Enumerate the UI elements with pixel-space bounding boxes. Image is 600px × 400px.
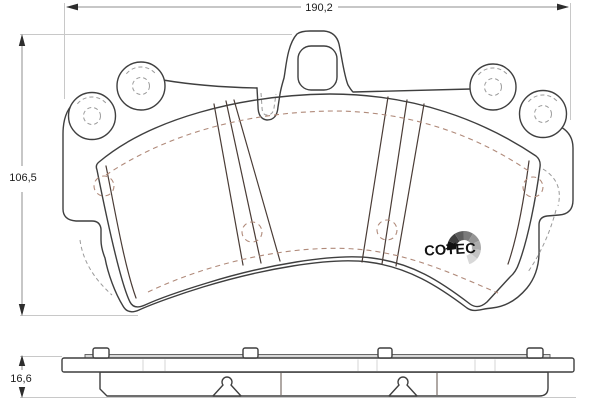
slot-line — [214, 104, 243, 265]
keyhole-slot — [389, 377, 417, 396]
arrow-left-icon — [66, 4, 78, 11]
chamfer-line-right — [508, 161, 529, 264]
width-dimension: 190,2 — [66, 2, 569, 14]
slot-line — [226, 101, 261, 263]
ear-circle-right-upper — [470, 64, 516, 110]
friction-pad-front — [96, 94, 540, 307]
logo-text: COTEC — [424, 241, 477, 260]
notch-hidden-edge — [261, 93, 276, 115]
clip-tab — [93, 348, 109, 358]
clip-tab — [243, 348, 258, 358]
ear-circle-right-lower — [520, 91, 567, 138]
hidden-hole-circle — [523, 177, 543, 197]
width-dimension-label: 190,2 — [305, 2, 333, 14]
hidden-edge-right-lower — [528, 210, 556, 272]
side-view — [62, 348, 574, 396]
drawing-canvas: 190,2 106,5 16,6 — [0, 0, 600, 400]
thickness-dimension-label: 16,6 — [10, 373, 31, 385]
slot-line — [382, 100, 407, 264]
keyhole-slot — [213, 377, 241, 396]
slot-line — [234, 100, 280, 261]
hidden-hole-circle — [242, 222, 262, 242]
height-dimension: 106,5 — [9, 34, 37, 316]
front-view: COTEC — [63, 31, 573, 312]
thickness-dimension: 16,6 — [10, 355, 31, 398]
hidden-edge-right-upper — [543, 169, 559, 206]
arrow-down-icon — [19, 304, 25, 316]
ear-circle-left-lower — [69, 93, 116, 140]
arrow-right-icon — [557, 4, 569, 11]
slot-line — [362, 97, 388, 262]
backplate-top-edge-left — [163, 80, 257, 88]
brake-pad-technical-drawing: 190,2 106,5 16,6 — [0, 0, 600, 400]
pad-hidden-top-edge — [106, 111, 530, 175]
height-dimension-label: 106,5 — [9, 172, 37, 184]
arrow-up-icon — [19, 34, 25, 46]
retainer-notch-and-tab — [257, 31, 471, 120]
ear-circle-left-upper — [117, 62, 165, 110]
clip-tab — [378, 348, 392, 358]
tab-hole — [298, 46, 337, 90]
clip-tab — [527, 348, 543, 358]
friction-pad-side — [100, 372, 548, 396]
slot-line — [396, 104, 424, 266]
backplate-side — [62, 358, 574, 372]
arrow-down-icon — [19, 387, 25, 398]
